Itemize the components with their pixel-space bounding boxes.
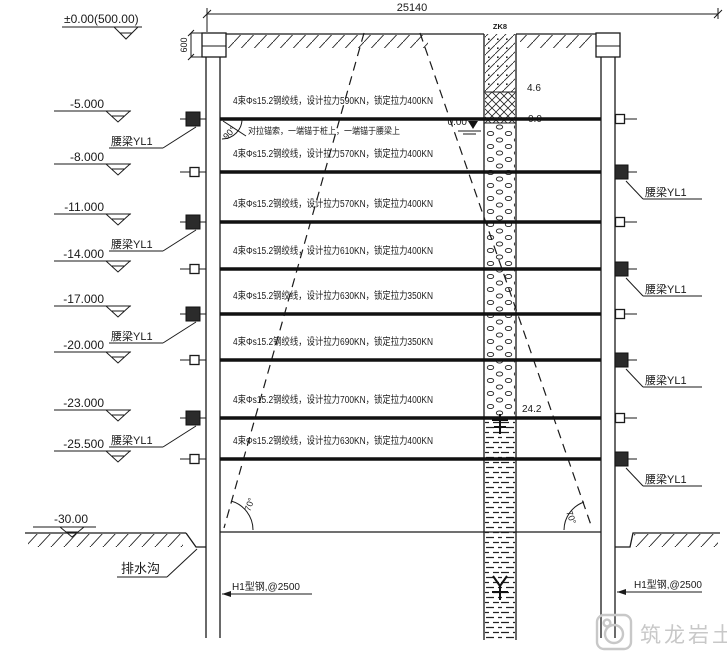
drainage-ditch-label: 排水沟 — [117, 549, 197, 577]
anchor-row-6: 4束Φs15.2钢绞线，设计拉力690KN，锁定拉力350KN — [180, 335, 637, 367]
anchor-spec-8: 4束Φs15.2钢绞线，设计拉力630KN，锁定拉力400KN — [233, 434, 433, 447]
elevation-marker-2: -8.000 — [54, 150, 131, 175]
svg-text:H1型钢,@2500: H1型钢,@2500 — [232, 580, 300, 593]
anchor-node — [616, 218, 625, 227]
anchor-spec-2: 4束Φs15.2钢绞线，设计拉力570KN，锁定拉力400KN — [233, 147, 433, 160]
ground-hatch-bottom-right — [634, 534, 718, 547]
outside-ground-left — [25, 533, 206, 547]
crown-beam-dimension: 600 — [179, 30, 202, 60]
crown-beam-left — [202, 33, 226, 57]
svg-text:-23.000: -23.000 — [63, 396, 104, 410]
anchor-plate — [186, 215, 200, 229]
waler-label-right-1: 腰梁YL1 — [626, 181, 702, 199]
svg-text:腰梁YL1: 腰梁YL1 — [111, 134, 153, 148]
ground-hatch-bottom-left — [28, 534, 183, 547]
svg-text:-17.000: -17.000 — [63, 292, 104, 306]
anchor-plate — [615, 353, 628, 367]
anchor-row-4: 4束Φs15.2钢绞线，设计拉力610KN，锁定拉力400KN — [180, 244, 637, 276]
anchor-spec-4: 4束Φs15.2钢绞线，设计拉力610KN，锁定拉力400KN — [233, 244, 433, 257]
anchor-spec-1: 4束Φs15.2钢绞线，设计拉力590KN，锁定拉力400KN — [233, 94, 433, 107]
span-dimension-label: 25140 — [397, 2, 428, 14]
wedge-dashed-left — [224, 33, 364, 528]
anchor-plate — [615, 452, 628, 466]
anchor-row-2: 4束Φs15.2钢绞线，设计拉力570KN，锁定拉力400KN — [180, 147, 637, 179]
svg-text:-20.000: -20.000 — [63, 338, 104, 352]
base-level-label: -30.00 — [54, 512, 88, 526]
depth-fill-label: 4.6 — [527, 83, 541, 94]
svg-text:-14.000: -14.000 — [63, 247, 104, 261]
drawing-canvas: 25140 ±0.00(500.00) 600 ZK8 — [0, 0, 727, 662]
angle-70-left: 70° — [231, 496, 257, 530]
waler-label-left-1: 腰梁YL1 — [109, 127, 196, 148]
datum-symbol: ±0.00(500.00) — [62, 12, 142, 39]
top-dimension: 25140 — [203, 2, 722, 32]
anchor-spec-3: 4束Φs15.2钢绞线，设计拉力570KN，锁定拉力400KN — [233, 197, 433, 210]
waler-label-right-2: 腰梁YL1 — [626, 278, 702, 296]
mascot-icon — [597, 615, 631, 649]
watermark-logo: 筑龙岩土 — [597, 615, 727, 649]
elevation-marker-1: -5.000 — [54, 97, 131, 122]
svg-text:-5.000: -5.000 — [70, 97, 104, 111]
waler-label-left-2: 腰梁YL1 — [109, 230, 196, 251]
waler-label-left-3: 腰梁YL1 — [109, 322, 196, 343]
tie-anchor-note: 对拉锚索，一端锚于桩上，一端锚于腰梁上 — [223, 121, 400, 136]
ground-hatch-right — [520, 35, 592, 48]
datum-label: ±0.00(500.00) — [64, 12, 139, 26]
anchor-row-5: 4束Φs15.2钢绞线，设计拉力630KN，锁定拉力350KN — [180, 289, 637, 321]
svg-text:-11.000: -11.000 — [64, 200, 104, 214]
outside-ground-right — [615, 533, 720, 547]
crown-beam-right — [596, 33, 620, 57]
elevation-marker-3: -11.000 — [54, 200, 131, 225]
waler-label-left-4: 腰梁YL1 — [109, 426, 196, 447]
borehole-column: ZK8 4.6 0.0 24.2 — [484, 22, 542, 640]
crown-dim-label: 600 — [179, 37, 189, 52]
svg-text:腰梁YL1: 腰梁YL1 — [111, 433, 153, 447]
anchor-spec-7: 4束Φs15.2钢绞线，设计拉力700KN，锁定拉力400KN — [233, 393, 433, 406]
anchor-node — [190, 356, 199, 365]
angle-70-right: 70° — [564, 502, 584, 530]
anchor-node — [190, 265, 199, 274]
borehole-id-label: ZK8 — [493, 22, 507, 31]
elevation-marker-5: -17.000 — [54, 292, 131, 317]
soil-layer-fill — [485, 34, 515, 92]
waler-label-right-3: 腰梁YL1 — [626, 369, 702, 387]
waler-label-right-4: 腰梁YL1 — [626, 468, 702, 486]
svg-text:H1型钢,@2500: H1型钢,@2500 — [634, 578, 702, 591]
svg-text:腰梁YL1: 腰梁YL1 — [645, 185, 687, 199]
excavation-section-drawing: 25140 ±0.00(500.00) 600 ZK8 — [0, 0, 727, 662]
svg-text:腰梁YL1: 腰梁YL1 — [645, 282, 687, 296]
anchor-plate — [186, 112, 200, 126]
anchor-spec-5: 4束Φs15.2钢绞线，设计拉力630KN，锁定拉力350KN — [233, 289, 433, 302]
svg-text:腰梁YL1: 腰梁YL1 — [645, 472, 687, 486]
anchor-node — [190, 168, 199, 177]
ditch-label: 排水沟 — [121, 561, 160, 576]
elevation-markers: -5.000 -8.000 -11.000 -14.000 -17.000 -2… — [54, 97, 131, 462]
angle-70-left-label: 70° — [242, 496, 256, 513]
angle-70-right-label: 70° — [564, 509, 578, 526]
elevation-marker-7: -23.000 — [54, 396, 131, 421]
anchor-spec-6: 4束Φs15.2钢绞线，设计拉力690KN，锁定拉力350KN — [233, 335, 433, 348]
anchor-row-7: 4束Φs15.2钢绞线，设计拉力700KN，锁定拉力400KN — [180, 393, 637, 425]
anchor-plate — [186, 307, 200, 321]
svg-text:-8.000: -8.000 — [70, 150, 104, 164]
depth-gravel-label: 24.2 — [522, 404, 542, 415]
anchor-row-1: 4束Φs15.2钢绞线，设计拉力590KN，锁定拉力400KN — [180, 94, 637, 126]
svg-text:腰梁YL1: 腰梁YL1 — [111, 329, 153, 343]
anchor-node — [616, 310, 625, 319]
anchor-row-3: 4束Φs15.2钢绞线，设计拉力570KN，锁定拉力400KN — [180, 197, 637, 229]
soil-layer-mudstone — [485, 417, 515, 640]
anchor-plate — [186, 411, 200, 425]
anchor-plate — [615, 262, 628, 276]
svg-text:-25.500: -25.500 — [63, 437, 104, 451]
pile-label-left: H1型钢,@2500 — [222, 580, 312, 597]
watermark-text: 筑龙岩土 — [640, 624, 727, 647]
ground-surface — [226, 34, 596, 48]
anchor-node — [190, 455, 199, 464]
note-label: 对拉锚索，一端锚于桩上，一端锚于腰梁上 — [248, 125, 400, 136]
anchor-node — [616, 414, 625, 423]
svg-text:腰梁YL1: 腰梁YL1 — [111, 237, 153, 251]
anchor-node — [616, 115, 625, 124]
ground-hatch-left — [228, 35, 428, 48]
svg-text:腰梁YL1: 腰梁YL1 — [645, 373, 687, 387]
pile-label-right: H1型钢,@2500 — [617, 578, 702, 595]
anchor-plate — [615, 165, 628, 179]
